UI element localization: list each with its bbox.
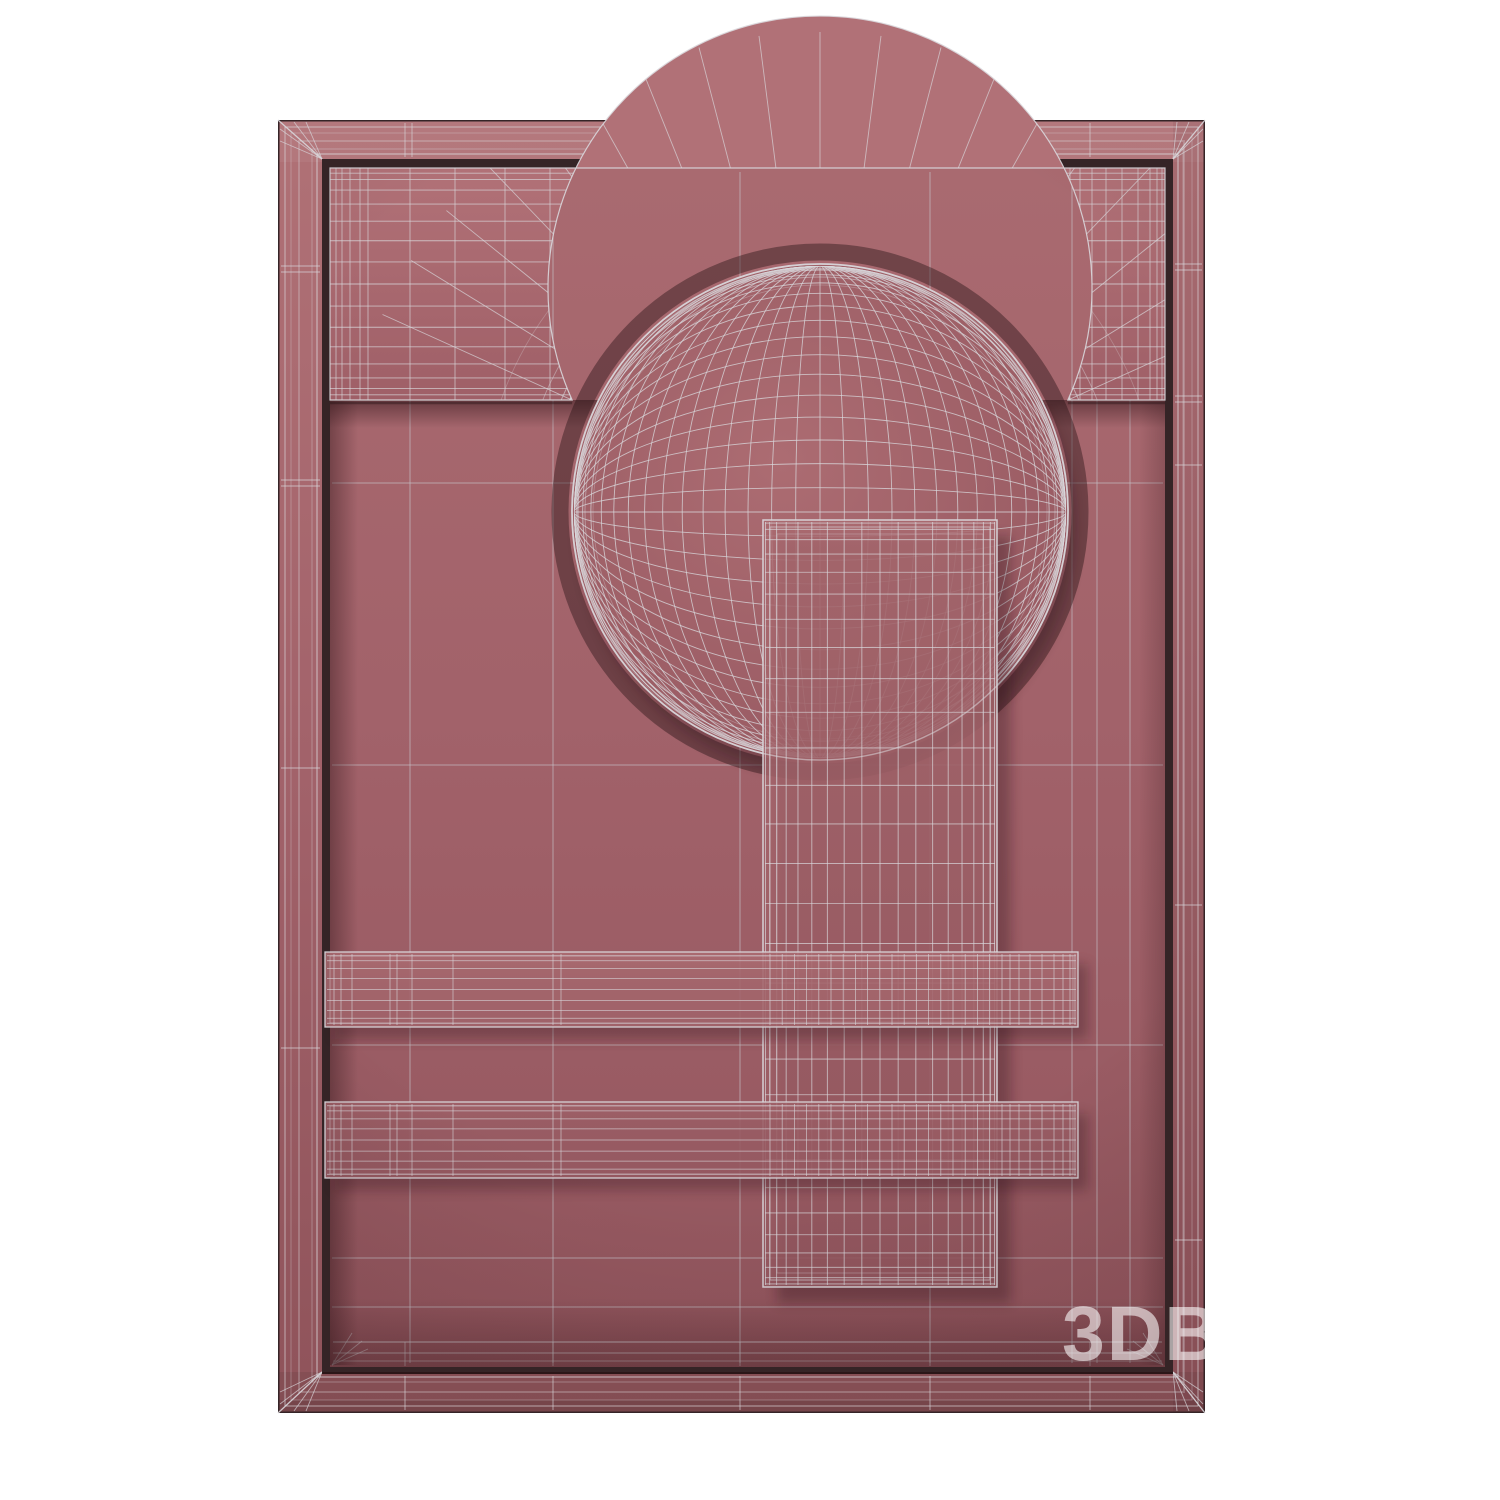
- wireframe-relief-panel: [0, 0, 1500, 1500]
- watermark: 3DB: [1062, 1296, 1222, 1373]
- vignette: [330, 168, 1165, 1367]
- model-preview-canvas: 3DB: [0, 0, 1500, 1500]
